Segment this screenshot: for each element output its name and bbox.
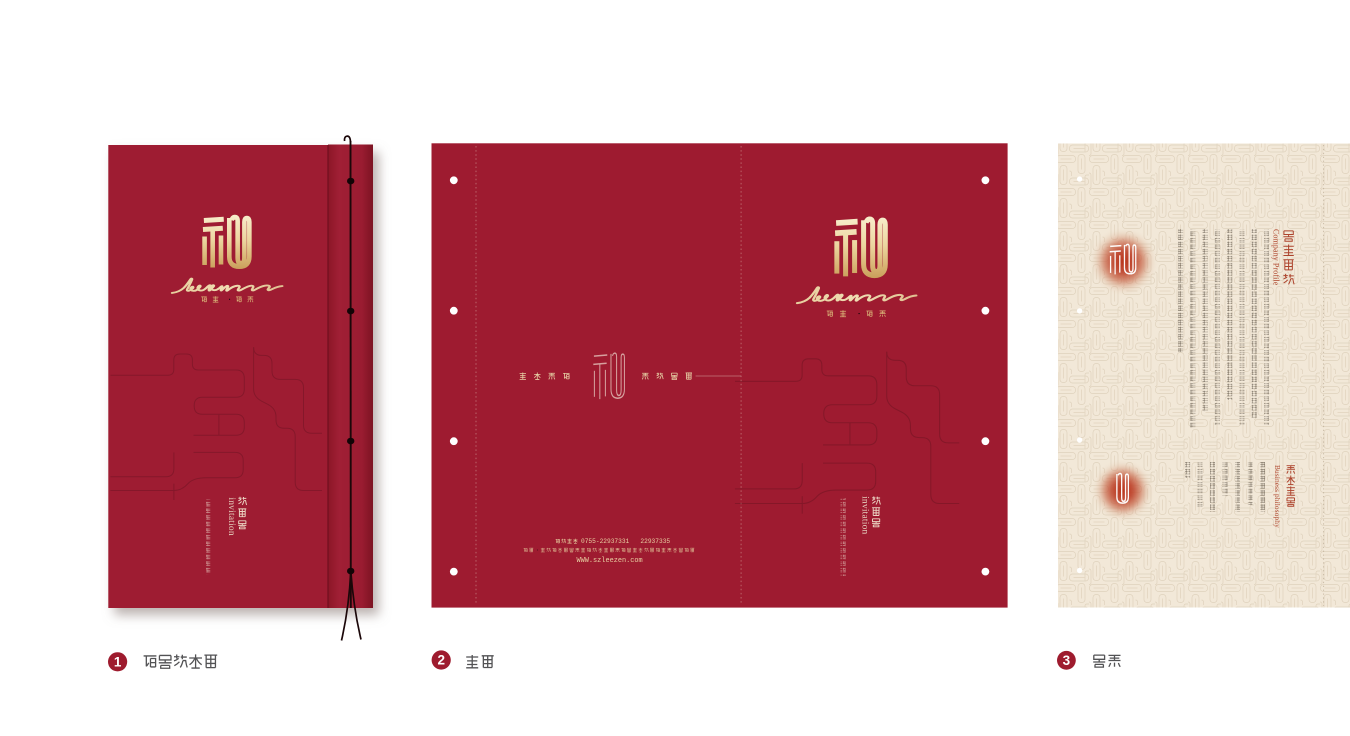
svg-text:WWW.szleezen.com: WWW.szleezen.com [577,557,643,565]
svg-text:0755-22937331 22937335: 0755-22937331 22937335 [581,538,670,545]
svg-text:Business philosophy: Business philosophy [1273,465,1282,528]
svg-text:3: 3 [1063,653,1071,668]
svg-text:invitation: invitation [859,496,869,534]
svg-text:2: 2 [437,653,445,668]
svg-text:invitation: invitation [226,497,236,535]
svg-text:Company Profile: Company Profile [1272,229,1281,286]
svg-text:1: 1 [114,655,122,670]
